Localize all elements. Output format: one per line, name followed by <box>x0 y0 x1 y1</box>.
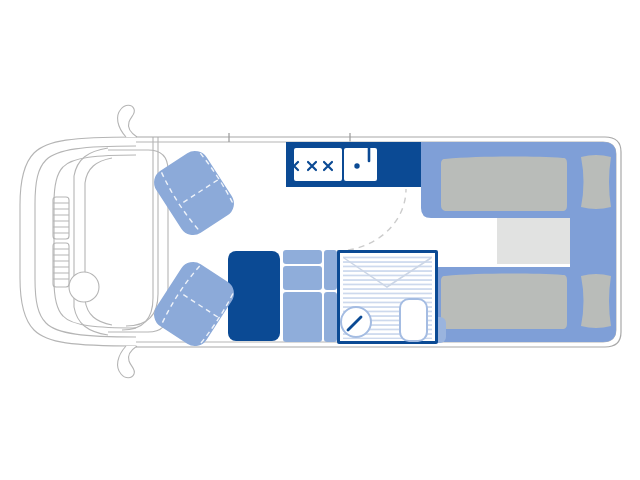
pillow-top-bed <box>581 155 611 209</box>
center-step <box>497 218 570 264</box>
floorplan-canvas <box>0 0 640 480</box>
pillow-bottom-bed <box>581 274 611 328</box>
cabinet-drawer <box>283 250 322 264</box>
kitchen-cabinet <box>283 250 337 342</box>
cabinet-side-strip <box>324 292 337 342</box>
toilet-icon <box>400 299 427 341</box>
hob-panel <box>294 148 342 181</box>
cabinet-drawer <box>283 266 322 290</box>
mattress-bottom-bed <box>441 274 567 329</box>
sink-drain-icon <box>354 163 359 168</box>
mattress-top-bed <box>441 157 567 211</box>
cabinet-side-strip <box>324 250 337 290</box>
bathroom <box>337 250 438 344</box>
wardrobe-block <box>382 142 421 187</box>
cabinet-door <box>283 292 322 342</box>
floorplan-svg <box>0 0 640 480</box>
steering-wheel-icon <box>69 272 99 302</box>
sink-panel <box>344 148 377 181</box>
kitchen-unit <box>286 142 382 187</box>
fridge-unit <box>228 251 280 341</box>
